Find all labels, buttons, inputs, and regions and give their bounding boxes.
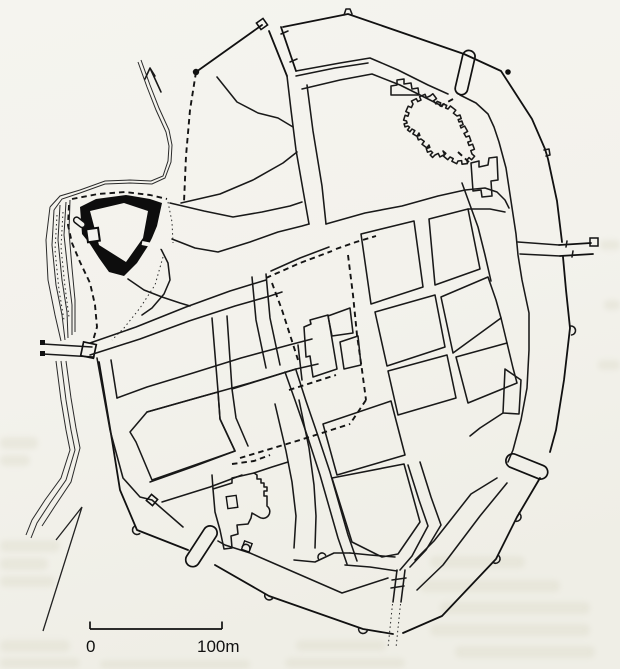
svg-text:100m: 100m [197,637,240,656]
svg-text:0: 0 [86,637,95,656]
